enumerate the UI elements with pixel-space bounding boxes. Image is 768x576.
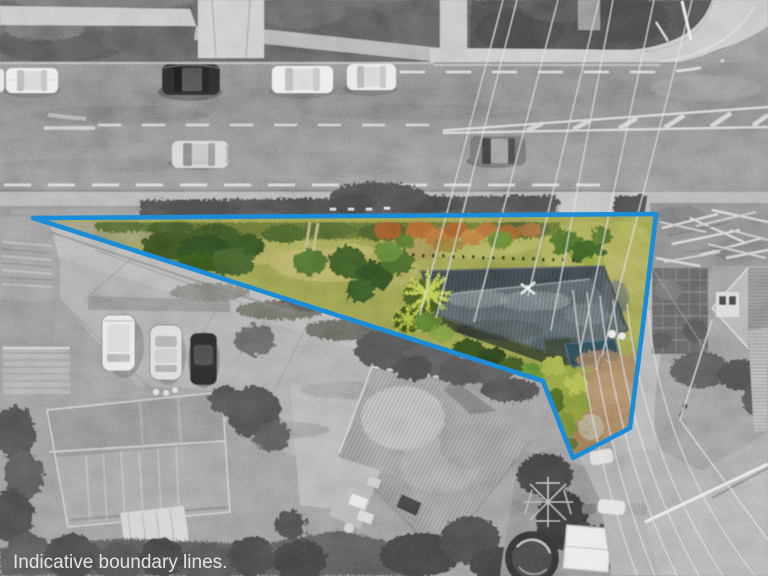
svg-text:Indicative boundary lines.: Indicative boundary lines. (13, 552, 227, 573)
